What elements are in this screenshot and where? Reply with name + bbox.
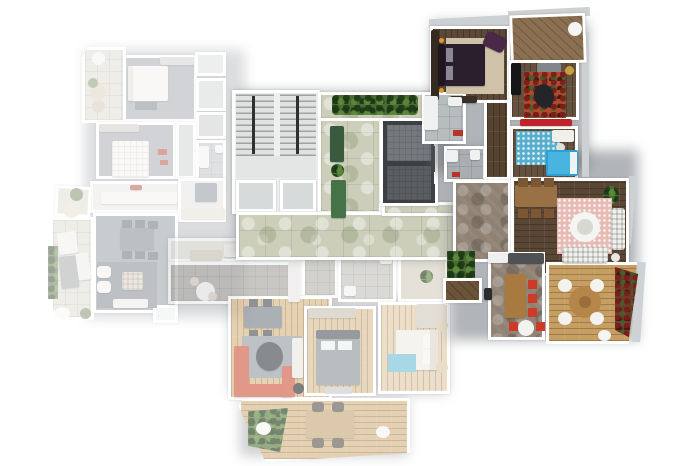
entry-deck — [443, 278, 482, 303]
toilet-bath-2 — [470, 150, 480, 160]
red-towel-bath-2 — [452, 172, 460, 177]
terrace-chair-2 — [590, 279, 604, 292]
chair-tr-6 — [544, 209, 554, 218]
sofa-white-right — [611, 208, 625, 250]
sideboard-red — [520, 119, 572, 126]
floor-plan-canvas — [0, 0, 700, 466]
red-chair-2 — [528, 294, 537, 303]
terrace-stone — [598, 330, 611, 341]
sofa-white-bottom — [562, 247, 608, 263]
round-table-center — [577, 219, 593, 235]
terrace-chair-4 — [590, 312, 604, 325]
red-chair-4 — [509, 322, 518, 331]
terrace-chair-3 — [558, 312, 572, 325]
pillow-master-2 — [446, 66, 453, 80]
balcony-top-right — [509, 13, 587, 66]
bed-master-headboard — [438, 44, 445, 86]
shower-bath-2 — [446, 150, 458, 162]
red-towel-bath-1 — [453, 130, 463, 136]
tub-bath-1 — [424, 96, 438, 130]
kitchen-counter-dark — [508, 253, 544, 264]
chair-tr-3 — [544, 178, 554, 187]
entry-garden — [447, 251, 475, 280]
side-table-living — [611, 253, 620, 262]
desk-blue-room — [552, 130, 574, 142]
chair-tr-5 — [531, 209, 541, 218]
bed-blue-duvet — [548, 152, 570, 174]
red-chair-1 — [528, 280, 537, 289]
kitchen-table-tr — [505, 274, 526, 318]
chair-tr-2 — [531, 178, 541, 187]
chair-tr-1 — [518, 178, 528, 187]
hallway-taupe — [453, 180, 511, 262]
red-chair-5 — [536, 322, 545, 331]
terrace-chair-1 — [558, 279, 572, 292]
sink-bath-1 — [448, 97, 462, 106]
bed-blue-pillow — [570, 152, 577, 174]
gold-mirror — [565, 66, 574, 75]
dining-table-tr — [515, 185, 557, 207]
corridor-wood — [484, 100, 510, 180]
red-chair-3 — [528, 308, 537, 317]
pillow-master-1 — [446, 48, 453, 62]
kitchen-counter-white — [488, 253, 508, 263]
unit-top-right[interactable] — [0, 0, 700, 466]
breakfast-table — [518, 320, 534, 336]
fridge — [484, 288, 492, 300]
terrace-table-center — [579, 296, 591, 308]
office-cabinet — [511, 63, 521, 95]
balcony-tr-stone — [568, 22, 582, 36]
lamp-amber-1 — [439, 38, 444, 43]
lamp-amber-2 — [439, 88, 444, 93]
chair-tr-4 — [518, 209, 528, 218]
